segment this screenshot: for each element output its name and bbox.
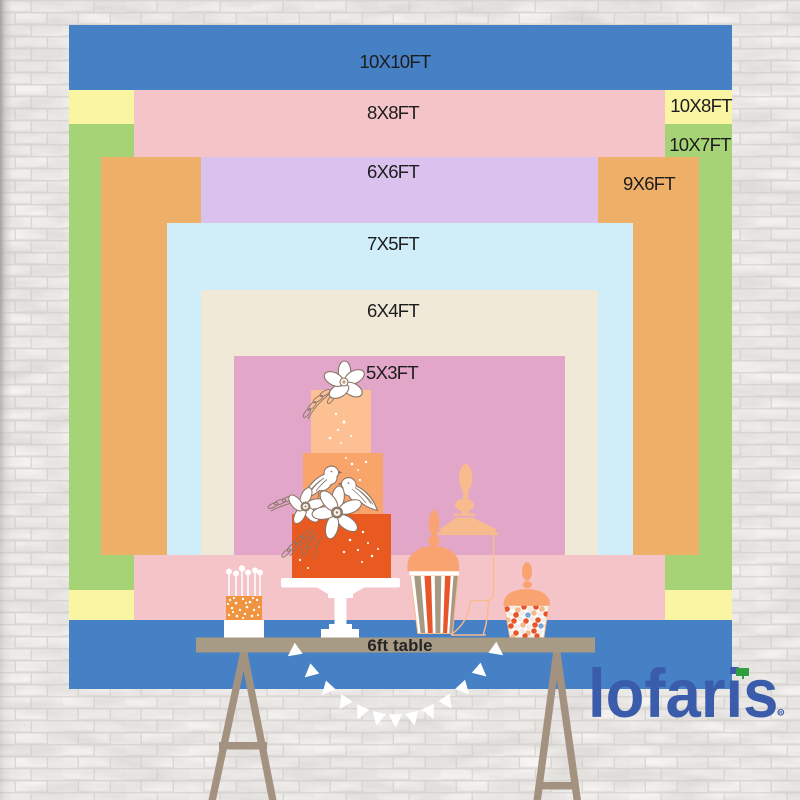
svg-text:6ft table: 6ft table (367, 636, 432, 655)
svg-text:lofaris: lofaris (590, 656, 778, 730)
